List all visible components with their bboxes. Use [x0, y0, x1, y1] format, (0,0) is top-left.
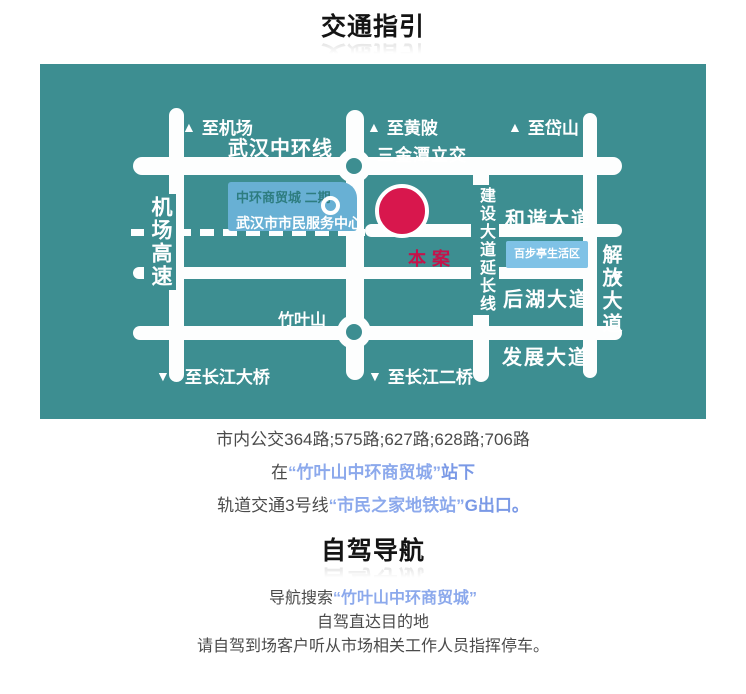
down-arrow-icon: ▼ — [368, 368, 382, 384]
up-arrow-icon: ▲ — [508, 119, 522, 135]
driving-section-title: 自驾导航 — [0, 517, 746, 565]
transit-section-title: 交通指引 — [0, 0, 746, 41]
transit-title-reflection: 交通指引 — [0, 41, 746, 56]
metro-station-name: “市民之家地铁站” — [329, 496, 465, 515]
roundabout-zhuyeshan — [337, 315, 371, 349]
jianshe-extension-label: 建设大道延长线 — [471, 185, 499, 315]
to-changjiang-bridge-label: 至长江大桥 — [185, 363, 270, 388]
fazhan-avenue-label: 发展大道 — [502, 341, 590, 370]
transit-title-reflection-text: 交通指引 — [321, 41, 425, 56]
nav-search-keyword: “竹叶山中环商贸城” — [333, 590, 477, 607]
bus-stop-name: “竹叶山中环商贸城” — [288, 463, 441, 482]
jiefang-avenue-label: 解放大道 — [596, 244, 625, 336]
station-ring-icon — [321, 196, 340, 215]
nav-search-prefix: 导航搜索 — [269, 590, 333, 607]
transit-info: 市内公交364路;575路;627路;628路;706路 在“竹叶山中环商贸城”… — [0, 429, 746, 517]
citizen-center-label: 武汉市市民服务中心 — [236, 213, 351, 233]
traffic-guide-page: 交通指引 交通指引 中环商贸城 二期 武汉市市民服务中心 百步亭生活区 本案 ▲… — [0, 0, 746, 694]
metro-exit: G出口。 — [465, 496, 529, 515]
project-site-label: 本案 — [408, 245, 456, 271]
nav-search-text: 导航搜索“竹叶山中环商贸城” — [0, 589, 746, 609]
driving-title-reflection: 自驾导航 — [0, 565, 746, 580]
direction-to-huangpi: ▲ 至黄陂 — [367, 114, 438, 139]
bus-stop-prefix: 在 — [271, 463, 288, 482]
up-arrow-icon: ▲ — [367, 119, 381, 135]
sanjintan-interchange-label: 三金潭立交 — [377, 141, 467, 166]
to-changjiang-bridge2-label: 至长江二桥 — [388, 363, 473, 388]
project-location-marker — [375, 184, 429, 238]
traffic-map: 中环商贸城 二期 武汉市市民服务中心 百步亭生活区 本案 ▲ 至机场 ▲ 至黄陂… — [40, 64, 706, 419]
baibuting-box: 百步亭生活区 — [506, 241, 588, 268]
up-arrow-icon: ▲ — [182, 119, 196, 135]
road-houhu — [133, 267, 595, 279]
road-fazhan — [133, 326, 622, 340]
driving-title-reflection-text: 自驾导航 — [321, 565, 425, 580]
metro-text: 轨道交通3号线“市民之家地铁站”G出口。 — [0, 495, 746, 517]
bus-stop-suffix: 站下 — [441, 463, 475, 482]
houhu-avenue-label: 后湖大道 — [503, 283, 591, 312]
parking-note-text: 请自驾到场客户听从市场相关工作人员指挥停车。 — [0, 637, 746, 657]
metro-prefix: 轨道交通3号线 — [217, 496, 328, 515]
zhuyeshan-label: 竹叶山 — [278, 306, 326, 330]
direction-to-daishan: ▲ 至岱山 — [508, 114, 579, 139]
to-daishan-label: 至岱山 — [528, 114, 579, 139]
bus-stop-text: 在“竹叶山中环商贸城”站下 — [0, 462, 746, 484]
direct-arrival-text: 自驾直达目的地 — [0, 613, 746, 633]
down-arrow-icon: ▼ — [156, 368, 170, 384]
bus-lines-text: 市内公交364路;575路;627路;628路;706路 — [0, 429, 746, 451]
hexie-avenue-label: 和谐大道 — [505, 203, 593, 232]
roundabout-sanjintan — [337, 149, 371, 183]
driving-info: 导航搜索“竹叶山中环商贸城” 自驾直达目的地 请自驾到场客户听从市场相关工作人员… — [0, 589, 746, 657]
airport-expressway-label: 机场高速 — [144, 194, 176, 290]
right-arrow-icon: ▶ — [615, 271, 623, 282]
wuhan-ring-road-label: 武汉中环线 — [228, 132, 333, 161]
to-huangpi-label: 至黄陂 — [387, 114, 438, 139]
direction-to-changjiang-bridge: ▼ 至长江大桥 — [156, 363, 270, 388]
direction-to-changjiang-bridge2: ▼ 至长江二桥 — [368, 363, 473, 388]
